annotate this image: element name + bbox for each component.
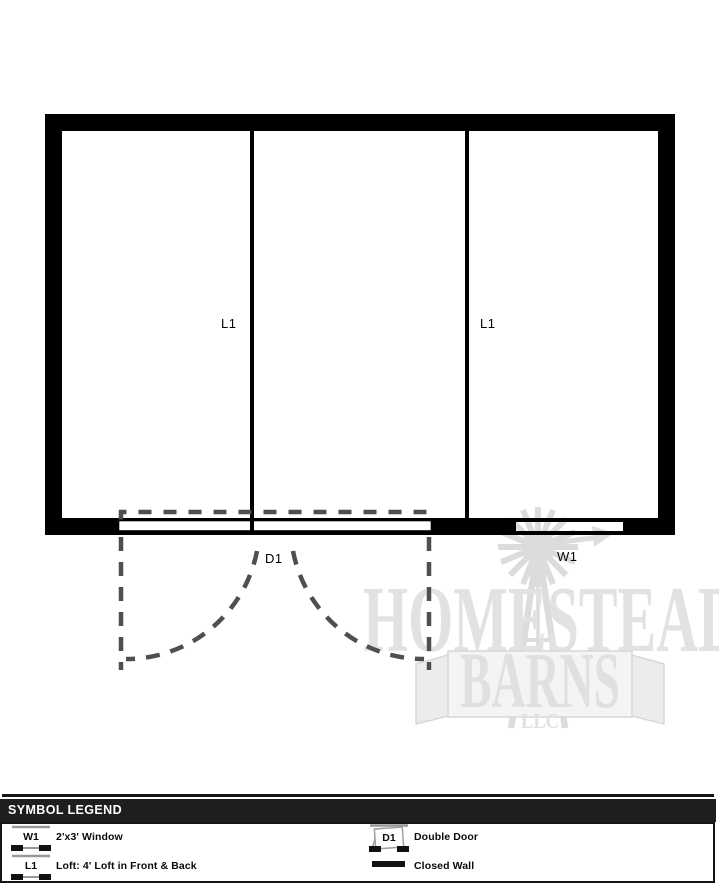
legend-box: W1 2'x3' Window L1 Loft: 4' Loft in Fron… xyxy=(0,822,715,883)
legend-item-double-door: Double Door xyxy=(414,831,478,843)
loft-symbol-label: L1 xyxy=(25,860,37,872)
loft-right-label: L1 xyxy=(480,317,495,330)
window-symbol-icon: W1 xyxy=(11,825,51,852)
double-door-symbol-label: D1 xyxy=(382,832,396,844)
legend-top-rule xyxy=(2,794,714,797)
door-swing-arc-right xyxy=(293,551,424,659)
outer-wall xyxy=(54,123,667,527)
window-label: W1 xyxy=(557,550,578,563)
loft-symbol-icon: L1 xyxy=(11,854,51,881)
double-door-symbol-icon: D1 xyxy=(367,824,411,853)
window-opening xyxy=(516,522,623,531)
legend-item-loft: Loft: 4' Loft in Front & Back xyxy=(56,860,197,872)
legend-item-closed-wall: Closed Wall xyxy=(414,860,474,872)
floor-plan xyxy=(0,0,719,884)
legend-item-window: 2'x3' Window xyxy=(56,831,123,843)
closed-wall-symbol-icon xyxy=(372,861,405,867)
legend-title: SYMBOL LEGEND xyxy=(0,799,716,822)
legend-header-bar: SYMBOL LEGEND xyxy=(0,799,716,822)
door-swing-arc-left xyxy=(126,551,257,659)
door-opening xyxy=(119,521,432,532)
door-label: D1 xyxy=(265,552,283,565)
window-symbol-label: W1 xyxy=(23,831,39,843)
loft-left-label: L1 xyxy=(221,317,236,330)
